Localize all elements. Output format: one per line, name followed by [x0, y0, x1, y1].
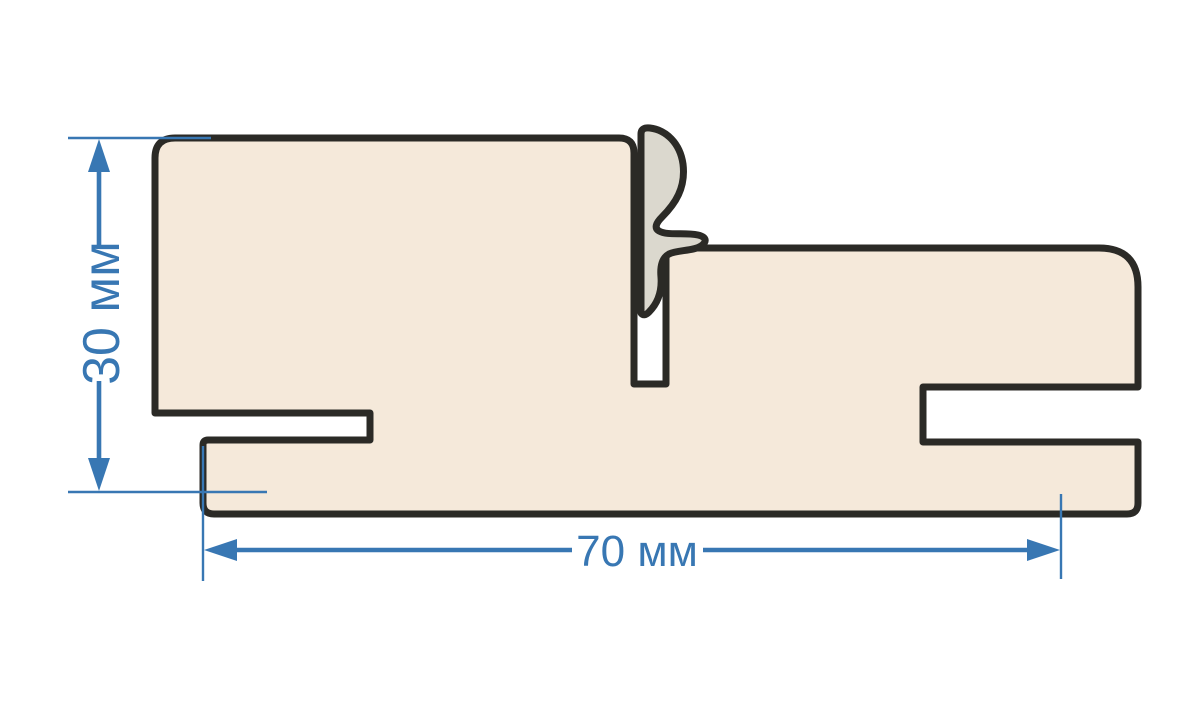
arrow-down-icon [88, 458, 110, 491]
dimension-width-label: 70 мм [576, 527, 698, 576]
door-frame-profile-drawing: 30 мм 70 мм [0, 0, 1184, 712]
dimension-height-label: 30 мм [73, 241, 131, 385]
arrow-up-icon [88, 139, 110, 172]
arrow-left-icon [204, 539, 237, 561]
arrow-right-icon [1027, 539, 1060, 561]
diagram-canvas: 30 мм 70 мм [0, 0, 1184, 712]
profile-group [155, 128, 1138, 514]
